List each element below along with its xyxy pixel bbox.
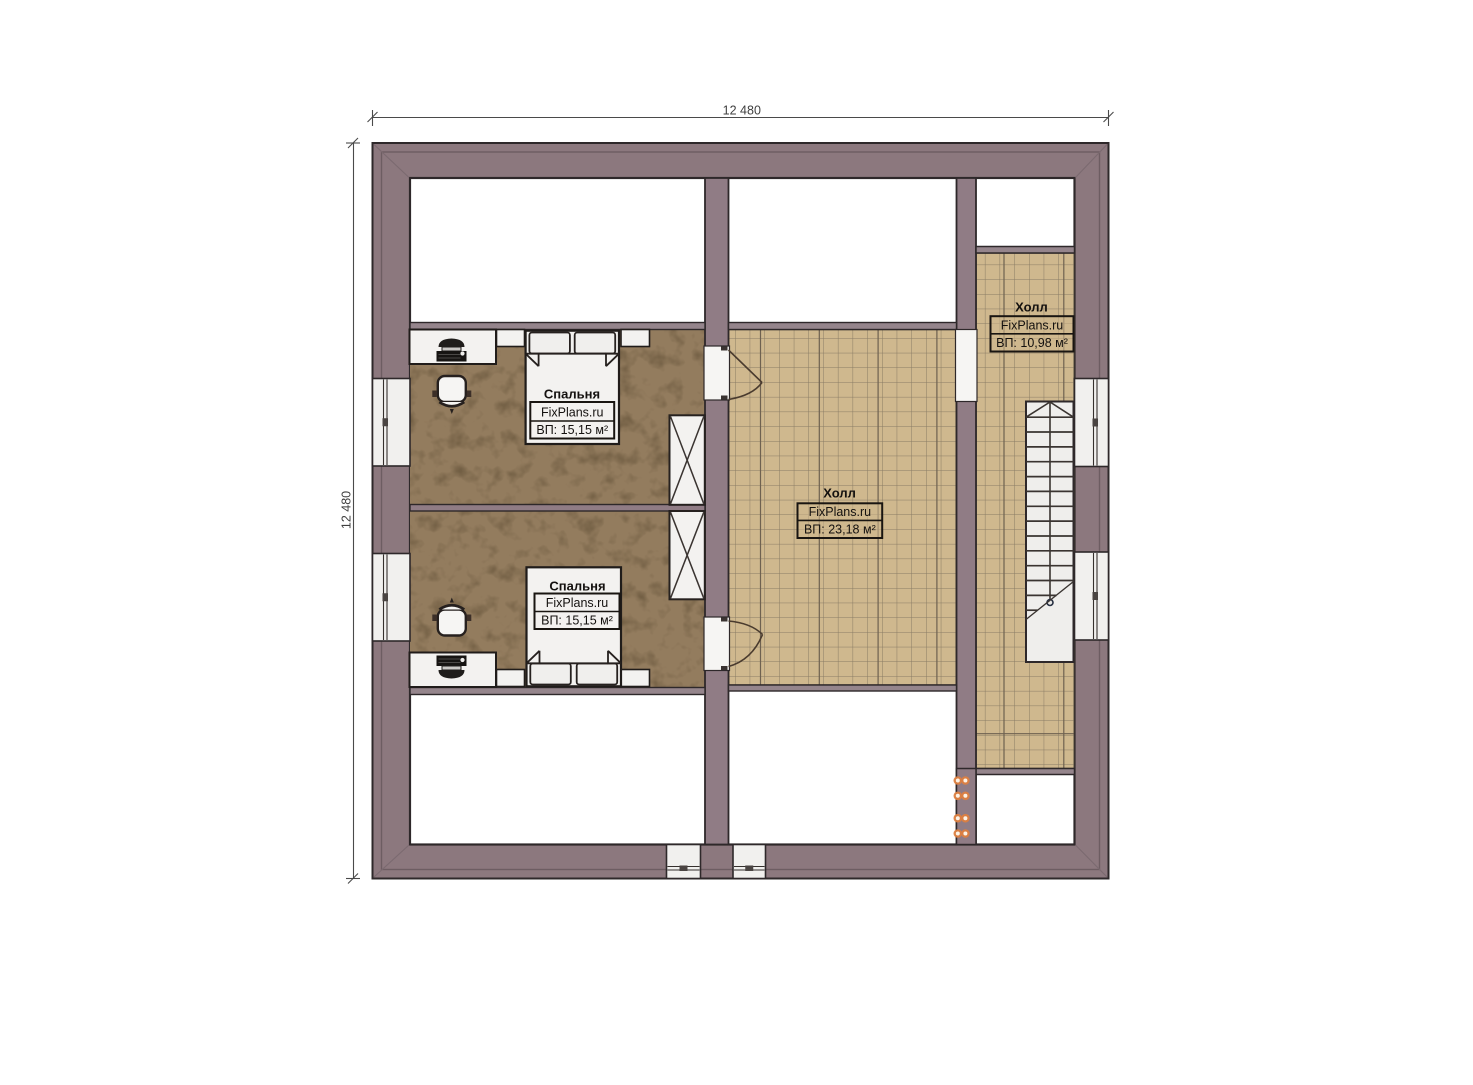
svg-text:Холл: Холл [1015,300,1048,315]
svg-text:ВП: 10,98 м²: ВП: 10,98 м² [996,336,1068,350]
svg-text:12 480: 12 480 [340,491,354,529]
svg-text:ВП: 15,15 м²: ВП: 15,15 м² [541,614,613,628]
svg-text:ВП: 23,18 м²: ВП: 23,18 м² [804,523,876,537]
svg-text:ВП: 15,15 м²: ВП: 15,15 м² [536,423,608,437]
svg-text:Холл: Холл [823,486,856,501]
svg-text:FixPlans.ru: FixPlans.ru [546,596,609,610]
svg-text:Спальня: Спальня [549,579,605,594]
svg-text:FixPlans.ru: FixPlans.ru [1001,318,1064,332]
svg-text:FixPlans.ru: FixPlans.ru [541,406,604,420]
svg-text:FixPlans.ru: FixPlans.ru [809,505,872,519]
svg-text:12 480: 12 480 [723,104,761,118]
svg-text:Спальня: Спальня [544,387,600,402]
